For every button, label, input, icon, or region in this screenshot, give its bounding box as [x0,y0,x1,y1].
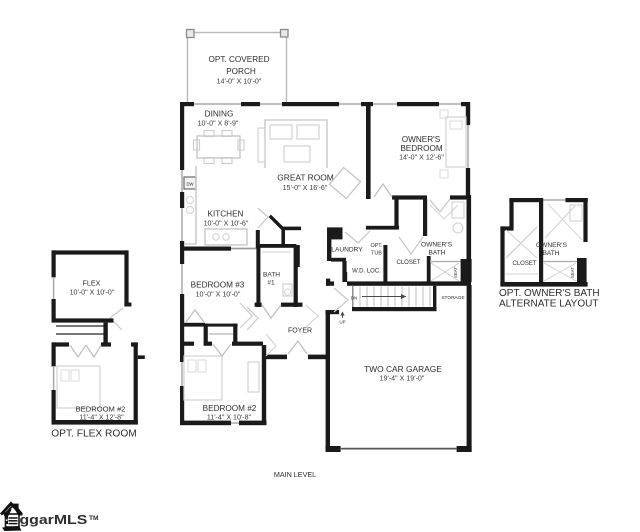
svg-text:TUB: TUB [371,251,382,257]
svg-text:#1: #1 [267,280,275,287]
svg-text:BEDROOM #3: BEDROOM #3 [191,281,245,290]
svg-text:DN: DN [351,296,357,301]
svg-text:MAIN LEVEL: MAIN LEVEL [274,470,316,479]
svg-text:14'-0" X 12'-6": 14'-0" X 12'-6" [399,154,444,162]
svg-text:BATH: BATH [428,250,445,257]
svg-text:CLOSET: CLOSET [512,261,536,267]
svg-text:UP: UP [339,320,345,325]
svg-text:FOYER: FOYER [288,328,312,335]
svg-text:OWNER'S: OWNER'S [402,135,441,144]
svg-text:W.D. LOC.: W.D. LOC. [352,269,381,275]
svg-text:11'-4" X 10'-8": 11'-4" X 10'-8" [207,414,252,422]
svg-text:10'-0" X 10'-0": 10'-0" X 10'-0" [196,291,241,299]
svg-text:LAUNDRY: LAUNDRY [331,247,363,254]
svg-text:OPT. FLEX ROOM: OPT. FLEX ROOM [51,429,136,440]
svg-text:KITCHEN: KITCHEN [208,210,244,219]
svg-text:SEAT: SEAT [453,267,458,278]
svg-text:BEDROOM #2: BEDROOM #2 [76,405,126,414]
svg-text:FLEX: FLEX [83,279,101,288]
svg-text:14'-0" X 10'-0": 14'-0" X 10'-0" [217,78,262,86]
svg-text:10'-0" X 8'-9": 10'-0" X 8'-9" [198,120,239,128]
svg-text:11'-4" X 12'-8": 11'-4" X 12'-8" [79,414,124,422]
svg-text:ALTERNATE LAYOUT: ALTERNATE LAYOUT [499,299,598,310]
svg-text:BATH: BATH [263,272,280,279]
svg-text:15'-0" X 16'-6": 15'-0" X 16'-6" [283,184,328,192]
svg-text:10'-0" X 10'-0": 10'-0" X 10'-0" [70,289,115,297]
svg-text:PORCH: PORCH [226,67,256,76]
svg-text:DW: DW [187,182,194,187]
svg-text:BEDROOM: BEDROOM [400,144,442,153]
svg-text:TWO CAR GARAGE: TWO CAR GARAGE [364,364,442,374]
svg-text:OPT. COVERED: OPT. COVERED [209,55,270,64]
svg-text:ggarMLS: ggarMLS [20,514,88,528]
svg-text:BATH: BATH [542,250,559,257]
svg-text:19'-4" X 19'-0": 19'-4" X 19'-0" [380,375,425,383]
svg-text:OPT.: OPT. [371,243,383,249]
svg-text:10'-0" X 10'-6": 10'-0" X 10'-6" [204,220,249,228]
svg-text:GREAT ROOM: GREAT ROOM [277,173,333,183]
svg-text:BEDROOM #2: BEDROOM #2 [203,404,257,413]
svg-text:CLOSET: CLOSET [396,260,420,266]
svg-text:DINING: DINING [205,110,234,119]
svg-text:OWNER'S: OWNER'S [536,242,568,249]
svg-text:TM: TM [89,515,99,522]
svg-text:STORAGE: STORAGE [441,295,464,301]
svg-text:OWNER'S: OWNER'S [421,242,453,249]
svg-text:OPT. OWNER'S BATH: OPT. OWNER'S BATH [499,288,600,299]
svg-text:SEAT: SEAT [570,267,575,278]
